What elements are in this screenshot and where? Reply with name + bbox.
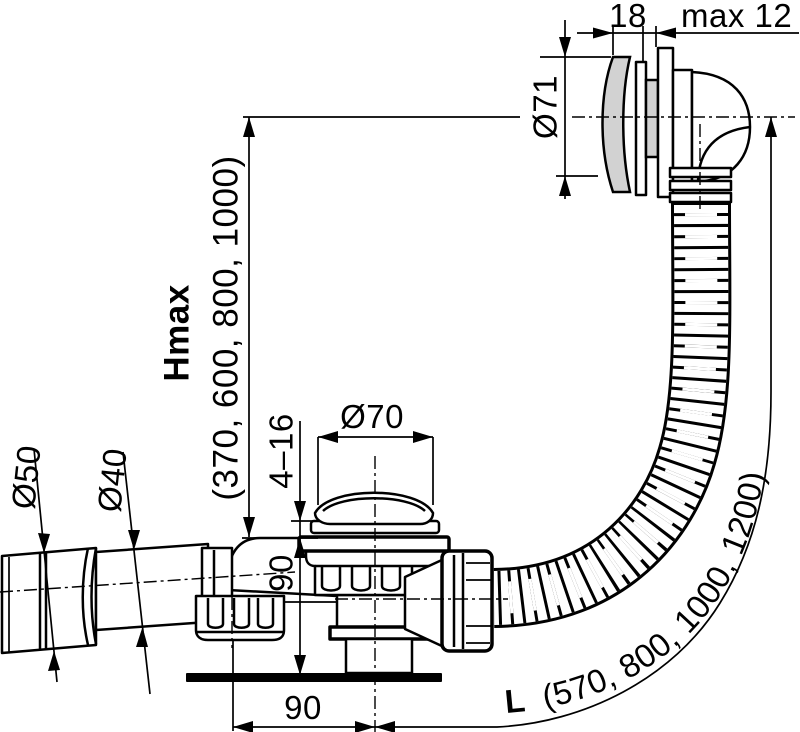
label-outlet-offset: 90 bbox=[284, 689, 322, 726]
label-plug-diameter: Ø70 bbox=[340, 398, 404, 435]
overflow-body bbox=[673, 70, 692, 183]
tray-floor-plate bbox=[186, 673, 442, 682]
top-flange bbox=[299, 537, 449, 551]
label-hmax-values: (370, 600, 800, 1000) bbox=[207, 155, 246, 500]
label-overflow-diameter: Ø71 bbox=[527, 75, 564, 139]
hose-length-letter: L bbox=[503, 681, 527, 720]
overflow-gasket bbox=[646, 80, 658, 157]
overflow-dome-cap bbox=[603, 57, 631, 192]
label-hmax: Hmax bbox=[158, 284, 197, 381]
label-cap-width: 18 bbox=[609, 0, 647, 34]
label-body-height: 90 bbox=[263, 554, 300, 592]
inlet-pipe-40 bbox=[96, 544, 208, 630]
tail-piece bbox=[346, 639, 412, 673]
overflow-washer bbox=[636, 62, 646, 195]
overflow-assembly bbox=[603, 48, 751, 202]
union-nut bbox=[442, 551, 492, 651]
bath-waste-overflow-technical-drawing: 18 max 12 Ø71 Hmax (370, 600, 800, 1000)… bbox=[0, 0, 800, 732]
label-inlet-dia-inner: Ø40 bbox=[90, 446, 133, 513]
label-clamp-range: 4–16 bbox=[263, 413, 300, 488]
label-inlet-dia-outer: Ø50 bbox=[4, 443, 47, 510]
label-panel-max: max 12 bbox=[681, 0, 792, 34]
inlet-pipe bbox=[2, 544, 208, 653]
diagram-canvas: 18 max 12 Ø71 Hmax (370, 600, 800, 1000)… bbox=[0, 0, 800, 732]
corrugated-hose bbox=[494, 202, 701, 598]
